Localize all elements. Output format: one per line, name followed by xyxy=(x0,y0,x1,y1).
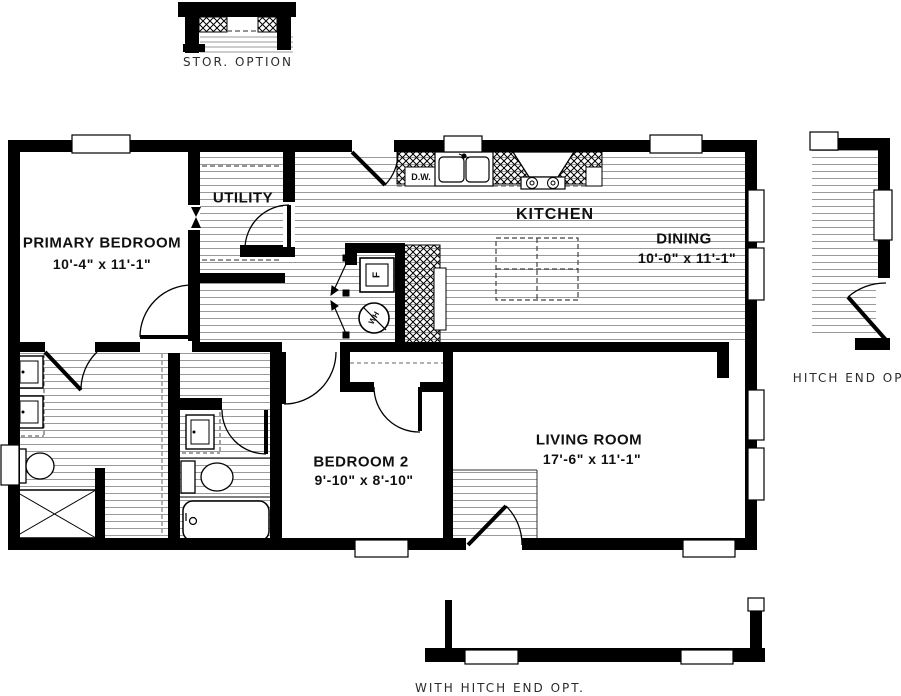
utility-right-wall xyxy=(283,152,295,202)
bath2-toilet xyxy=(181,461,233,493)
utility-label: UTILITY xyxy=(213,190,273,207)
primary-bedroom-label: PRIMARY BEDROOM xyxy=(23,235,181,252)
closet-door xyxy=(374,387,420,432)
bath1-shower xyxy=(13,490,96,538)
bath1-inner-wall xyxy=(95,468,105,538)
floor-plan-canvas: PRIMARY BEDROOM 10'-4" x 11'-1" UTILITY … xyxy=(0,0,901,696)
primary-bedroom-dims: 10'-4" x 11'-1" xyxy=(53,256,151,272)
hitch-end-label: HITCH END OPT. xyxy=(793,371,901,385)
dining-label: DINING xyxy=(656,231,712,248)
furnace-label: F xyxy=(372,272,383,278)
kitchen-label: KITCHEN xyxy=(516,206,594,224)
hall-wall xyxy=(20,342,717,352)
bedroom2-door xyxy=(284,352,336,404)
storage-option-label: STOR. OPTION xyxy=(183,55,293,69)
dining-dims: 10'-0" x 11'-1" xyxy=(638,250,736,266)
with-hitch-end-label: WITH HITCH END OPT. xyxy=(415,681,585,695)
mech-cabinet xyxy=(404,245,446,343)
end-cabinet xyxy=(586,167,602,186)
living-room-label: LIVING ROOM xyxy=(536,432,642,449)
refrigerator xyxy=(434,268,446,330)
primary-bedroom-wall xyxy=(188,152,200,352)
kitchen-sink xyxy=(435,152,493,186)
bedroom2-right-wall xyxy=(443,342,453,538)
floor-plan-drawing xyxy=(0,0,901,696)
storage-option-detail xyxy=(178,2,296,53)
with-hitch-end-option xyxy=(425,598,765,664)
bath2-top-wall xyxy=(180,398,222,410)
utility-bottom-wall xyxy=(197,273,285,283)
bedroom2-left-wall xyxy=(270,352,282,538)
bath-divider-wall xyxy=(168,352,180,538)
bath2-vanity xyxy=(182,412,220,453)
bedroom2-label: BEDROOM 2 xyxy=(313,454,408,471)
living-room-dims: 17'-6" x 11'-1" xyxy=(543,451,641,467)
primary-bedroom-door xyxy=(140,285,192,337)
bedroom2-dims: 9'-10" x 8'-10" xyxy=(314,472,413,488)
dishwasher-label: D.W. xyxy=(411,172,431,182)
dining-wall-return xyxy=(717,342,729,378)
bath2-tub xyxy=(183,501,269,541)
